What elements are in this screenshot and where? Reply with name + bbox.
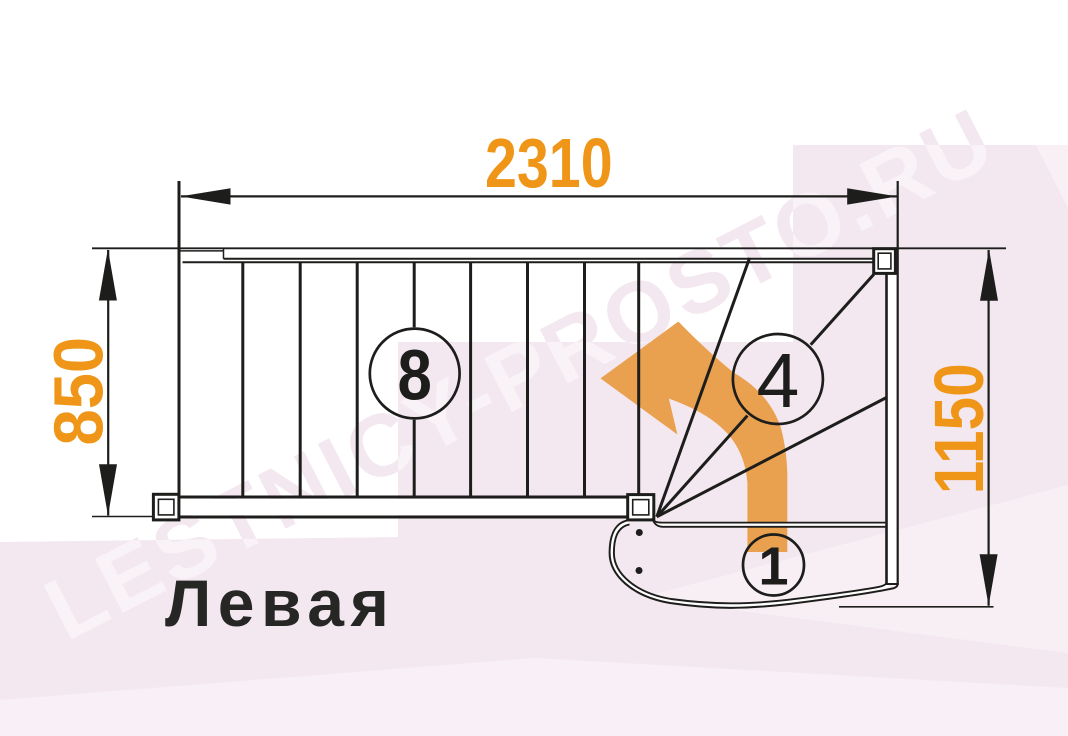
svg-text:2310: 2310 bbox=[485, 124, 613, 203]
svg-text:1: 1 bbox=[758, 537, 788, 597]
svg-text:8: 8 bbox=[398, 337, 432, 416]
svg-text:1150: 1150 bbox=[920, 363, 998, 494]
svg-text:850: 850 bbox=[40, 337, 118, 446]
svg-text:4: 4 bbox=[756, 338, 799, 424]
svg-text:Левая: Левая bbox=[165, 566, 395, 640]
